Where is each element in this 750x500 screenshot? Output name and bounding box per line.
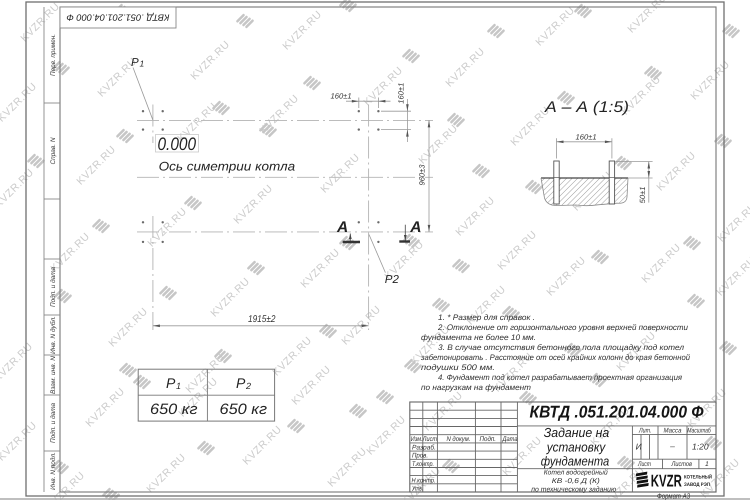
svg-text:по техническому заданию: по техническому заданию [531,485,617,493]
svg-text:KVZR: KVZR [651,472,682,491]
svg-text:1915±2: 1915±2 [248,314,276,325]
svg-text:КВТД .051.201.04.000 Ф: КВТД .051.201.04.000 Ф [530,403,705,422]
svg-text:Н.контр.: Н.контр. [412,477,436,484]
svg-text:забетонировать . Расстояние о: забетонировать . Расстояние от осей край… [420,353,690,362]
svg-text:4. Фундамент под котел разраб: 4. Фундамент под котел разрабатывает про… [438,373,683,382]
svg-text:Взам. инв. N: Взам. инв. N [50,356,57,394]
svg-text:160±1: 160±1 [397,83,406,104]
svg-text:160±1: 160±1 [331,91,352,100]
svg-text:Котел водогрейный: Котел водогрейный [544,468,608,476]
svg-text:2. Отклонение от горизонтальн: 2. Отклонение от горизонтального уровня … [437,323,689,332]
svg-text:Изм.Лист: Изм.Лист [411,436,437,443]
svg-text:Лист: Лист [637,461,651,468]
svg-text:650 кг: 650 кг [150,401,198,418]
svg-text:160±1: 160±1 [576,132,597,141]
svg-text:Дата: Дата [502,436,518,443]
svg-text:1: 1 [176,381,181,391]
svg-text:Т.контр.: Т.контр. [412,461,434,468]
svg-text:Подп. и дата: Подп. и дата [50,403,57,443]
svg-text:Подп. и дата: Подп. и дата [50,267,57,307]
svg-text:ЗАВОД РЭП: ЗАВОД РЭП [684,482,710,488]
svg-text:–: – [669,441,675,451]
svg-text:И: И [636,442,643,452]
svg-text:Масса: Масса [664,428,682,435]
svg-text:фундамента: фундамента [541,454,610,469]
svg-text:фундамента не более 10 мм.: фундамента не более 10 мм. [421,333,536,342]
svg-text:Инв. N подл.: Инв. N подл. [50,452,57,490]
svg-text:А: А [336,219,348,236]
svg-text:Лит.: Лит. [638,428,651,435]
svg-text:Задание на: Задание на [544,425,610,440]
svg-text:А – А (1:5): А – А (1:5) [544,99,629,116]
svg-text:Формат А3: Формат А3 [657,491,691,500]
svg-text:1: 1 [705,461,709,468]
svg-text:Листов: Листов [671,461,693,468]
svg-text:установку: установку [546,439,607,454]
svg-text:Справ. N: Справ. N [50,137,57,164]
svg-text:Инв. N дубл.: Инв. N дубл. [50,316,57,354]
svg-text:P: P [236,375,246,391]
svg-text:1. * Размер для справок .: 1. * Размер для справок . [438,313,535,322]
svg-text:P2: P2 [385,274,400,286]
svg-text:P: P [131,57,139,69]
svg-text:по нагрузкам на фундамент: по нагрузкам на фундамент [421,383,531,392]
svg-text:P: P [166,375,176,391]
svg-text:0.000: 0.000 [158,134,197,154]
svg-text:Ось симетрии котла: Ось симетрии котла [159,160,296,174]
svg-text:КОТЕЛЬНЫЙ: КОТЕЛЬНЫЙ [684,474,712,481]
svg-text:подушки 500 мм.: подушки 500 мм. [421,363,495,372]
svg-text:N докум.: N докум. [447,436,471,443]
svg-text:1: 1 [140,58,145,68]
svg-text:650 кг: 650 кг [220,401,268,418]
svg-text:Разраб.: Разраб. [412,445,436,452]
svg-text:КВТД .051.201.04.000 Ф: КВТД .051.201.04.000 Ф [67,12,170,22]
svg-text:2: 2 [245,381,251,391]
svg-text:Перв. примен.: Перв. примен. [50,34,57,76]
svg-text:Подп.: Подп. [480,436,497,443]
svg-text:Утв.: Утв. [411,486,423,493]
svg-text:50±1: 50±1 [638,186,647,203]
svg-text:960±3: 960±3 [418,164,427,186]
svg-text:3. В случае отсутствия бетонн: 3. В случае отсутствия бетонного пола пл… [438,343,685,352]
svg-text:Пров.: Пров. [412,453,428,460]
svg-text:1:20: 1:20 [692,442,709,452]
svg-text:Масштаб: Масштаб [687,428,711,435]
svg-text:КВ -0,6 Д (К): КВ -0,6 Д (К) [552,477,600,485]
svg-text:А: А [409,219,421,236]
